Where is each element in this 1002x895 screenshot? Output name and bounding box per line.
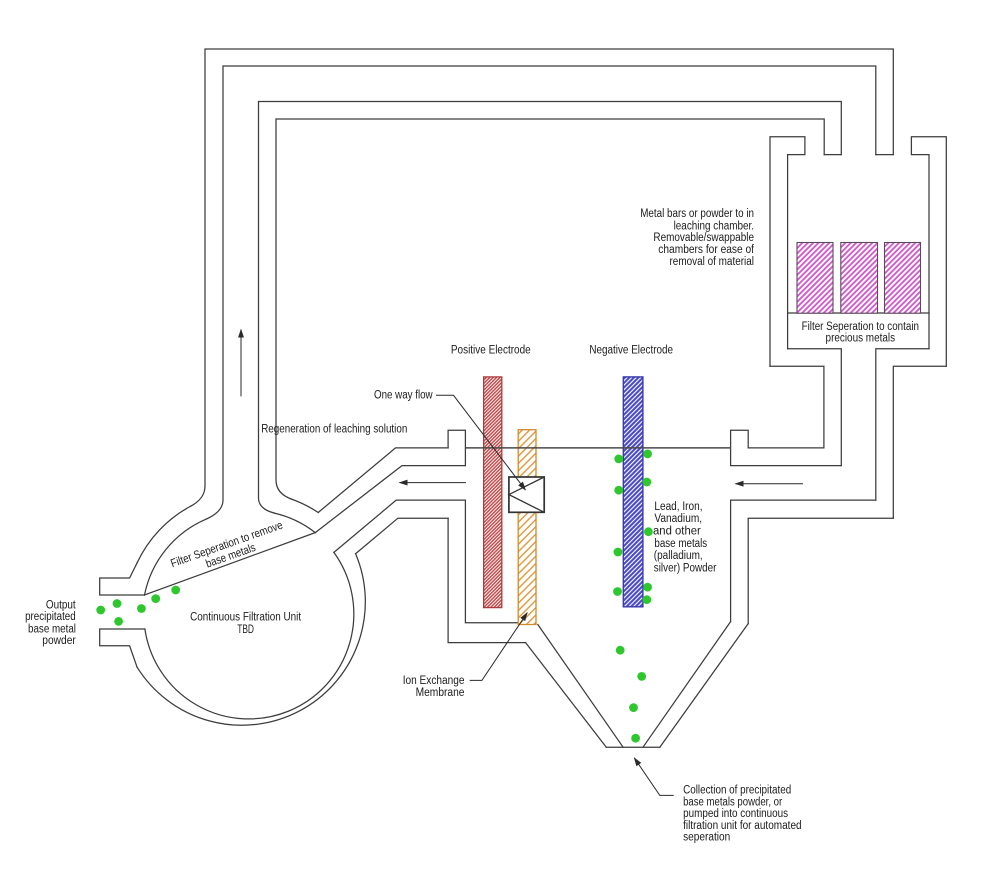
svg-text:(palladium,: (palladium,	[654, 550, 703, 562]
svg-text:Lead, Iron,: Lead, Iron,	[654, 501, 702, 513]
svg-text:Collection of precipitated: Collection of precipitated	[683, 785, 791, 797]
svg-text:Vanadium,: Vanadium,	[654, 513, 702, 525]
svg-text:Positive Electrode: Positive Electrode	[451, 345, 531, 357]
svg-text:Ion Exchange: Ion Exchange	[403, 675, 465, 687]
svg-text:Membrane: Membrane	[416, 687, 465, 699]
svg-text:removal of material: removal of material	[670, 256, 755, 268]
svg-text:chambers for ease of: chambers for ease of	[658, 244, 754, 256]
svg-text:pumped into continuous: pumped into continuous	[683, 808, 788, 820]
svg-text:leaching chamber.: leaching chamber.	[674, 221, 754, 233]
svg-text:filtration unit for automated: filtration unit for automated	[683, 820, 802, 832]
svg-text:Regeneration of leaching solut: Regeneration of leaching solution	[261, 424, 407, 436]
svg-text:base metals: base metals	[654, 538, 707, 550]
svg-text:base metal: base metal	[28, 623, 76, 635]
svg-text:seperation: seperation	[683, 832, 730, 844]
svg-text:silver) Powder: silver) Powder	[654, 563, 717, 575]
svg-text:base metals powder, or: base metals powder, or	[683, 796, 782, 808]
svg-text:precipitated: precipitated	[25, 611, 76, 623]
svg-text:powder: powder	[42, 635, 76, 647]
svg-text:One way flow: One way flow	[374, 389, 433, 401]
svg-text:Continuous Filtration Unit: Continuous Filtration Unit	[190, 612, 302, 624]
svg-text:Metal bars or powder to in: Metal bars or powder to in	[640, 208, 754, 220]
svg-text:and other: and other	[653, 526, 701, 538]
svg-text:Filter Seperation to contain: Filter Seperation to contain	[802, 321, 919, 333]
svg-text:Negative Electrode: Negative Electrode	[589, 345, 673, 357]
svg-text:TBD: TBD	[237, 624, 254, 636]
svg-text:Removable/swappable: Removable/swappable	[653, 232, 754, 244]
svg-text:precious metals: precious metals	[826, 333, 896, 345]
svg-text:Output: Output	[46, 600, 76, 612]
